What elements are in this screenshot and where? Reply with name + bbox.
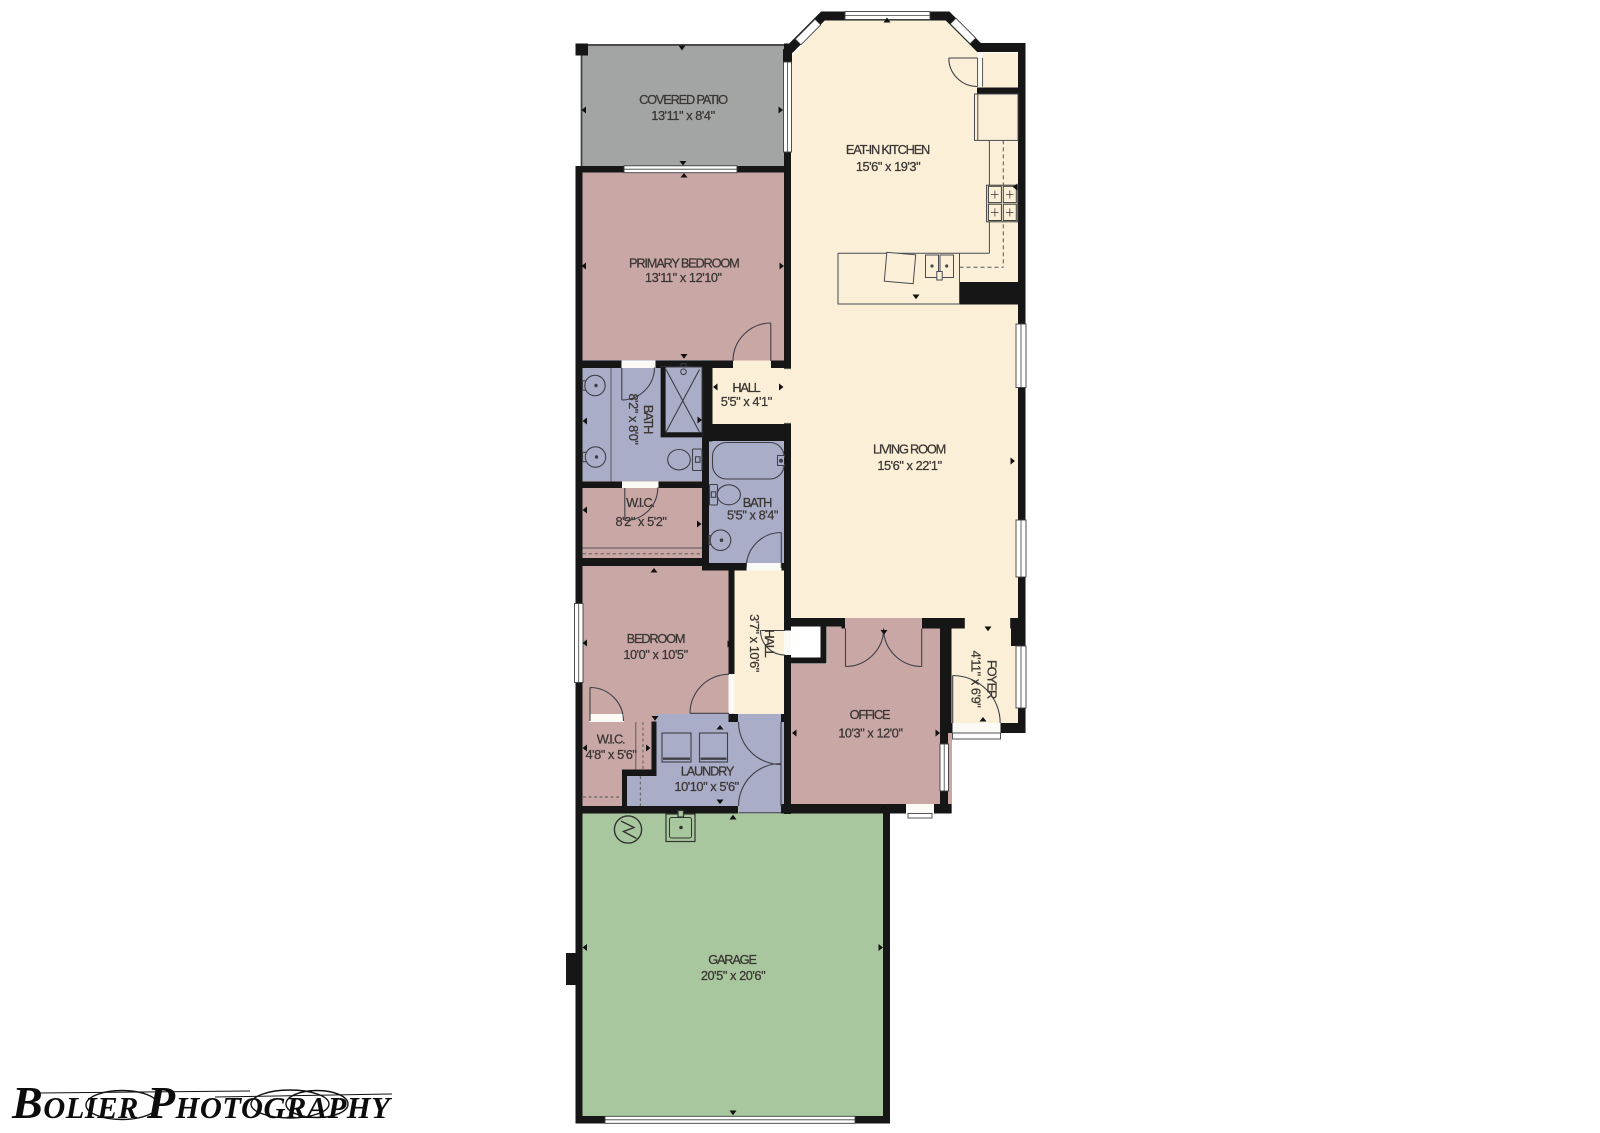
svg-text:13'11" x 12'10": 13'11" x 12'10"	[645, 270, 722, 285]
svg-text:8'2" x 5'2": 8'2" x 5'2"	[616, 514, 667, 529]
svg-text:3'7" x 10'6": 3'7" x 10'6"	[747, 614, 762, 672]
svg-text:15'6" x 19'3": 15'6" x 19'3"	[856, 159, 920, 174]
svg-text:FOYER: FOYER	[985, 660, 1000, 699]
svg-text:20'5" x 20'6": 20'5" x 20'6"	[701, 968, 765, 983]
svg-text:COVERED PATIO: COVERED PATIO	[639, 92, 728, 107]
svg-text:10'10" x 5'6": 10'10" x 5'6"	[674, 779, 738, 794]
svg-text:LAUNDRY: LAUNDRY	[681, 763, 735, 778]
svg-text:BATH: BATH	[641, 405, 656, 434]
svg-text:HALL: HALL	[762, 629, 777, 657]
svg-text:BEDROOM: BEDROOM	[627, 631, 685, 646]
svg-text:W.I.C.: W.I.C.	[626, 495, 654, 510]
svg-text:GARAGE: GARAGE	[708, 952, 756, 967]
svg-text:8'2" x 8'0": 8'2" x 8'0"	[626, 394, 641, 445]
svg-text:EAT-IN KITCHEN: EAT-IN KITCHEN	[846, 142, 930, 157]
svg-text:LIVING ROOM: LIVING ROOM	[873, 442, 946, 457]
svg-text:15'6" x 22'1": 15'6" x 22'1"	[877, 458, 941, 473]
svg-text:10'3" x 12'0": 10'3" x 12'0"	[838, 725, 902, 740]
svg-text:5'5" x 8'4": 5'5" x 8'4"	[727, 508, 778, 523]
svg-text:4'11" x 6'9": 4'11" x 6'9"	[969, 651, 984, 708]
svg-text:4'8" x 5'6": 4'8" x 5'6"	[586, 747, 637, 762]
svg-text:W.I.C.: W.I.C.	[597, 731, 625, 746]
svg-text:OFFICE: OFFICE	[850, 707, 890, 722]
svg-text:10'0" x 10'5": 10'0" x 10'5"	[623, 647, 687, 662]
svg-text:HALL: HALL	[732, 380, 760, 395]
svg-text:PRIMARY BEDROOM: PRIMARY BEDROOM	[629, 255, 739, 270]
svg-text:13'11" x 8'4": 13'11" x 8'4"	[651, 108, 714, 123]
svg-text:5'5" x 4'1": 5'5" x 4'1"	[721, 394, 772, 409]
